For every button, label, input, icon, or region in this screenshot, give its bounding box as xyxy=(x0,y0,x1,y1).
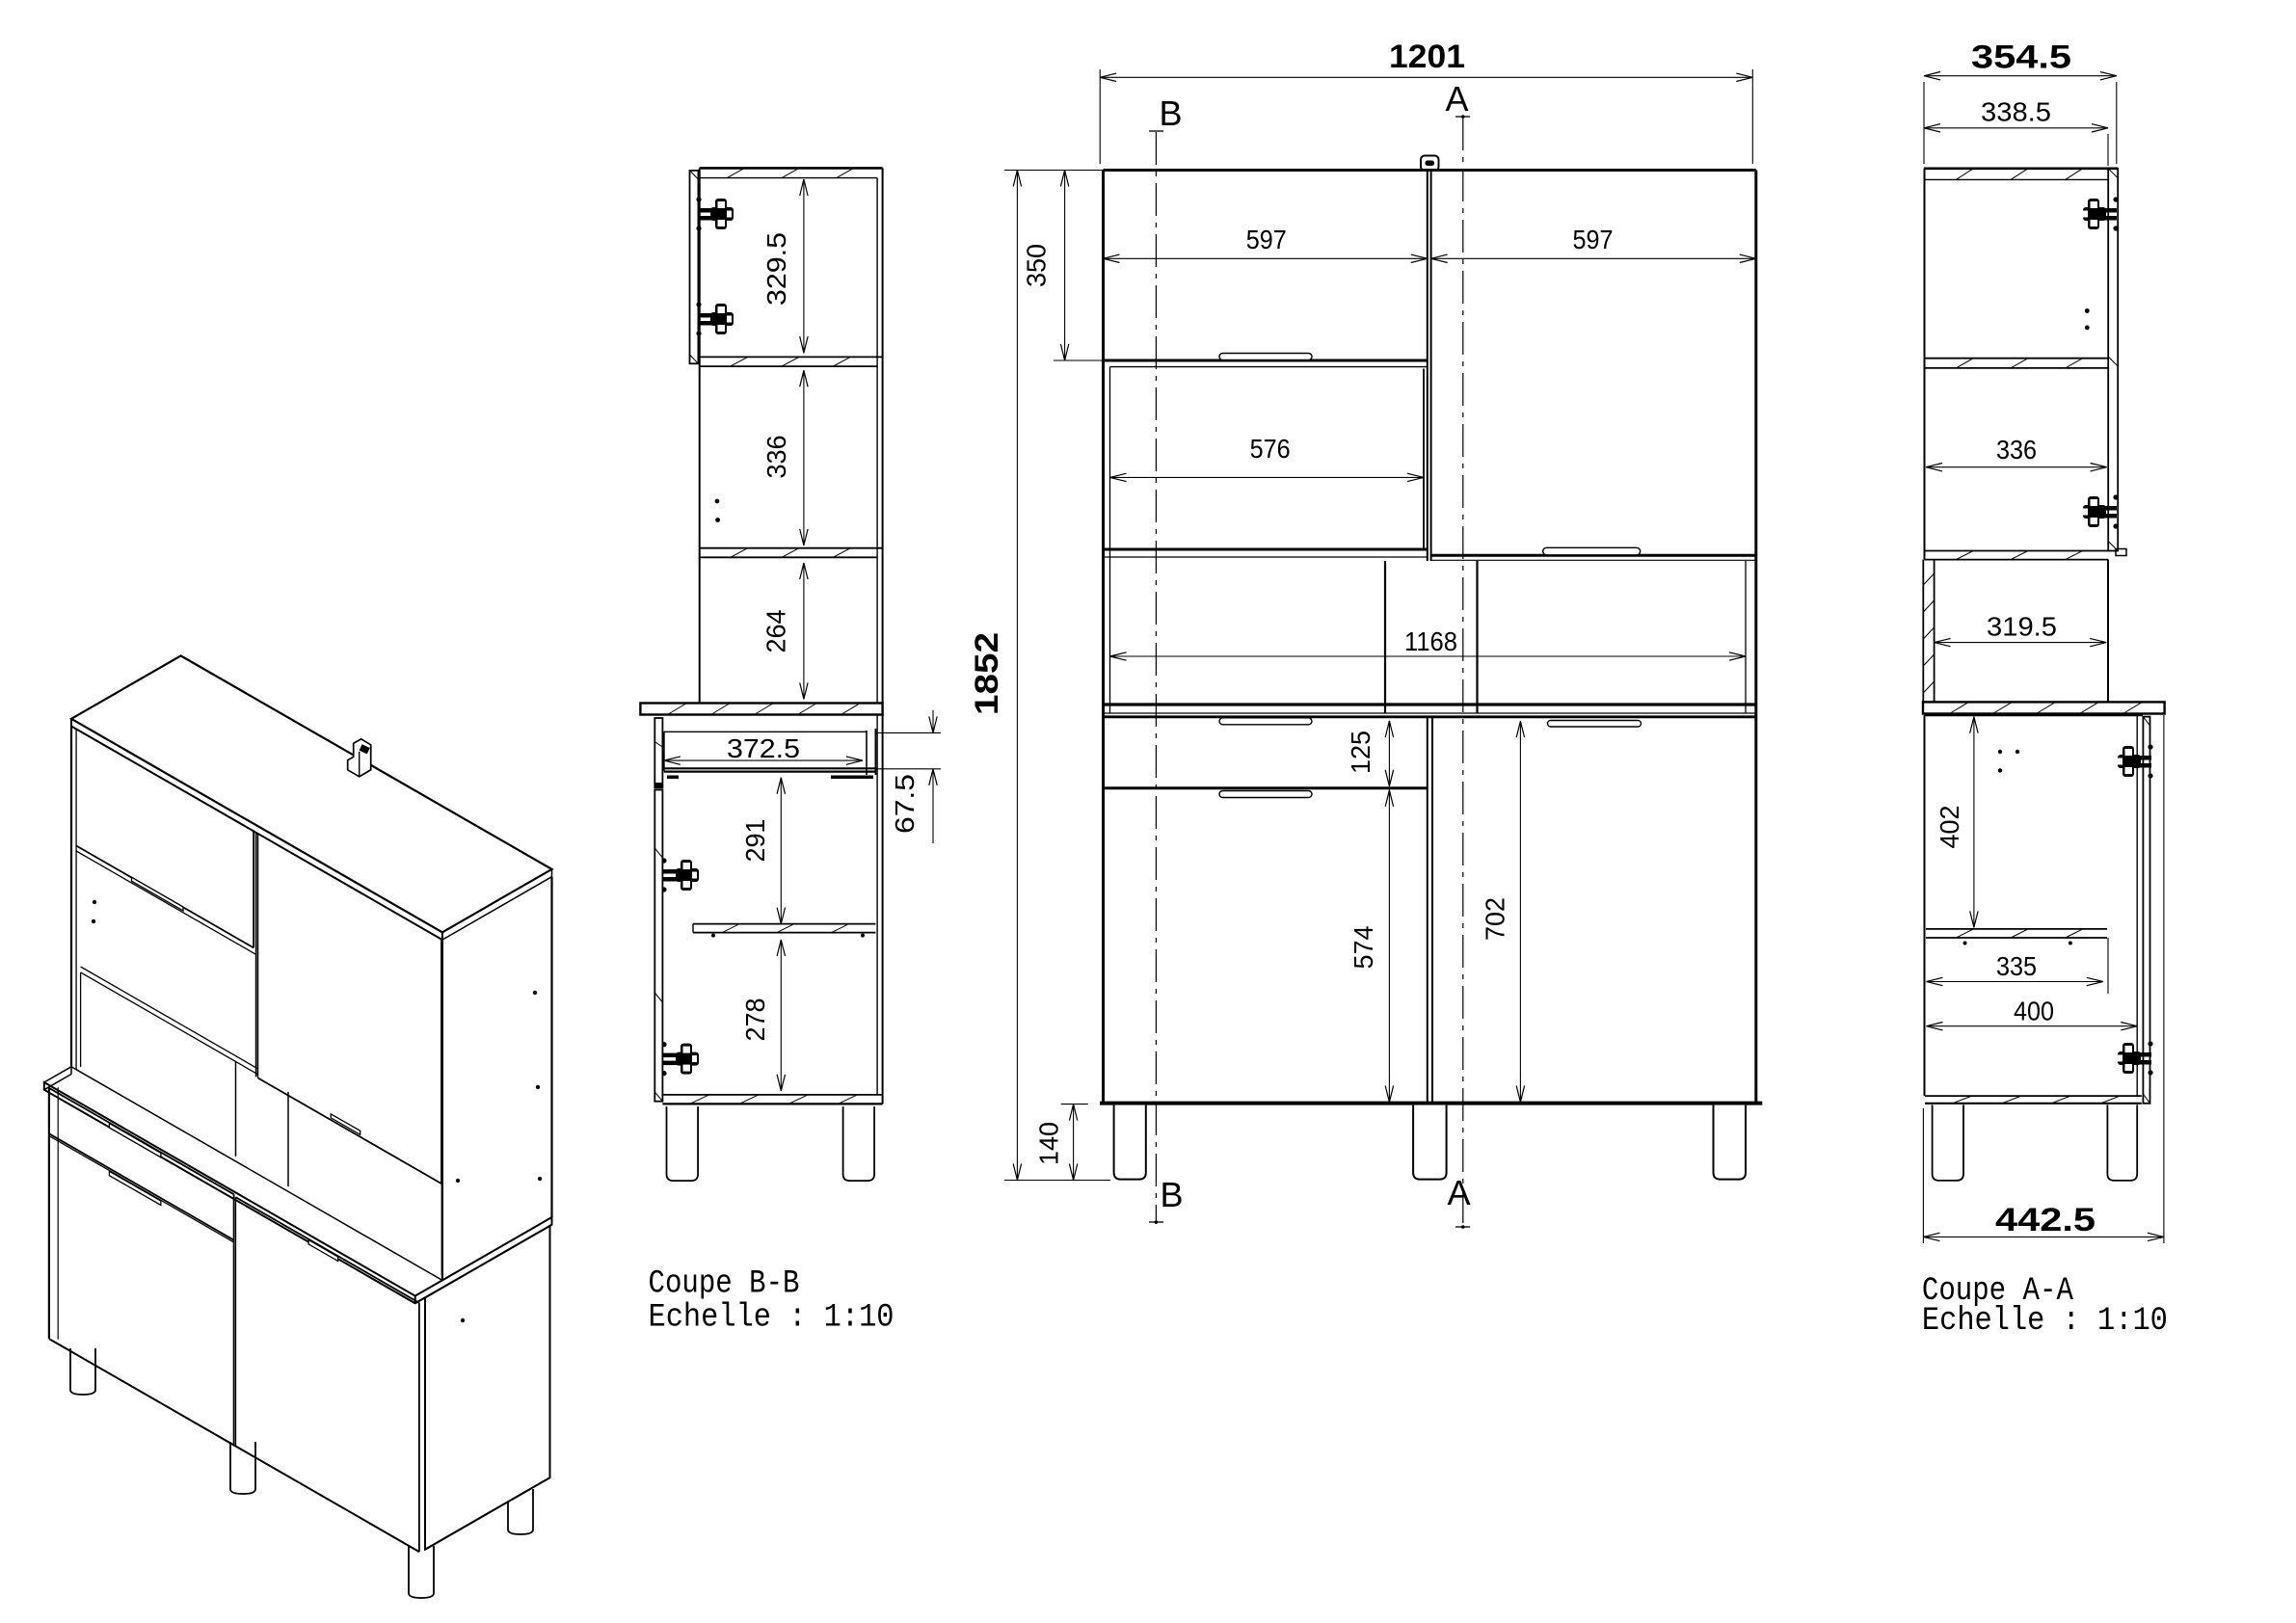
svg-text:402: 402 xyxy=(1935,806,1964,849)
svg-text:A: A xyxy=(1447,1173,1470,1212)
svg-text:350: 350 xyxy=(1022,244,1052,287)
svg-text:335: 335 xyxy=(1996,951,2037,981)
svg-text:B: B xyxy=(1159,93,1182,133)
svg-text:702: 702 xyxy=(1481,897,1510,941)
svg-text:67.5: 67.5 xyxy=(890,774,920,834)
svg-text:A: A xyxy=(1445,79,1468,119)
svg-text:140: 140 xyxy=(1034,1122,1064,1165)
svg-text:291: 291 xyxy=(740,819,770,863)
svg-text:354.5: 354.5 xyxy=(1971,40,2071,76)
svg-text:278: 278 xyxy=(740,998,770,1042)
svg-text:338.5: 338.5 xyxy=(1981,97,2051,127)
svg-text:319.5: 319.5 xyxy=(1987,612,2057,642)
svg-text:574: 574 xyxy=(1348,926,1378,970)
svg-text:372.5: 372.5 xyxy=(727,733,800,763)
svg-text:597: 597 xyxy=(1573,225,1614,254)
svg-text:336: 336 xyxy=(761,436,791,479)
svg-text:336: 336 xyxy=(1996,435,2037,465)
svg-text:Coupe B-B: Coupe B-B xyxy=(649,1266,800,1303)
svg-text:1168: 1168 xyxy=(1404,626,1457,656)
svg-text:264: 264 xyxy=(761,610,791,653)
svg-text:400: 400 xyxy=(2014,997,2054,1026)
svg-text:125: 125 xyxy=(1346,731,1375,774)
svg-text:Echelle : 1:10: Echelle : 1:10 xyxy=(1922,1303,2168,1340)
svg-text:1201: 1201 xyxy=(1389,39,1465,75)
svg-text:1852: 1852 xyxy=(969,632,1005,715)
svg-text:Echelle : 1:10: Echelle : 1:10 xyxy=(649,1300,894,1337)
svg-text:B: B xyxy=(1160,1175,1183,1214)
svg-text:597: 597 xyxy=(1246,225,1287,254)
svg-text:576: 576 xyxy=(1250,434,1291,464)
svg-text:329.5: 329.5 xyxy=(761,232,791,306)
svg-text:442.5: 442.5 xyxy=(1995,1202,2096,1238)
